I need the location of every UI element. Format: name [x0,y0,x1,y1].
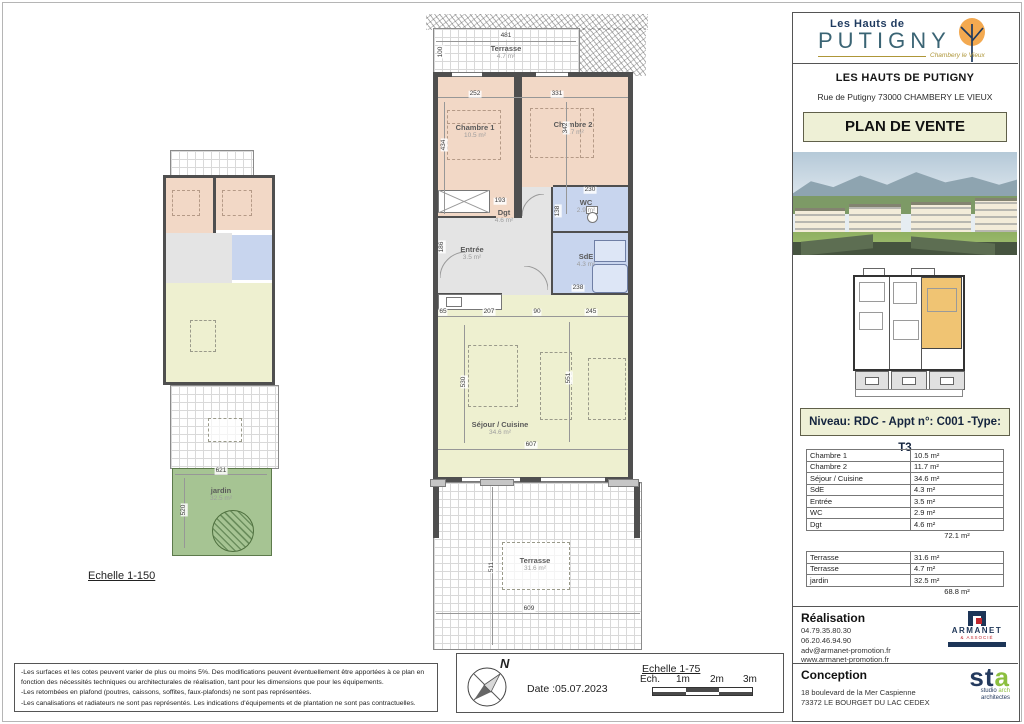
room-name: jardin [210,486,232,495]
room-label-cell: Entrée [807,496,911,508]
room-area: 4.6 m² [495,217,513,225]
dimension-label: 138 [555,205,562,218]
terrace-wall [433,482,439,538]
small-room-bath [232,235,272,280]
pier [430,479,446,487]
address-line: 18 boulevard de la Mer Caspienne [801,688,930,698]
room-label-sde: SdE 4.3 m² [577,252,595,270]
room-name: Chambre 1 [456,123,495,132]
room-label-cell: SdE [807,484,911,496]
door-arc [522,194,544,216]
room-label-cell: jardin [807,575,911,587]
door-arc [524,266,548,290]
sofa-outline [588,358,626,420]
sta-logo: sta studio arch architectes [940,666,1010,702]
room-name: Séjour / Cuisine [472,420,529,429]
brand-logo-place-text: Chambery le Vieux [930,52,985,59]
dimension-label: 511 [489,561,496,573]
key-room [927,288,957,312]
room-label-entree: Entrée 3.5 m² [460,245,483,263]
sta-arch-text: arch [998,688,1010,694]
plan-de-vente-sheet: 481 100 Terrasse 4.7 m² [0,0,1024,724]
address-line: 73372 LE BOURGET DU LAC CEDEX [801,698,930,708]
small-wall-partition [213,178,216,233]
dimension-label: 207 [483,309,496,316]
key-room [859,282,885,302]
room-label-cell: Chambre 1 [807,450,911,462]
disclaimer-box: -Les surfaces et les cotes peuvent varie… [14,663,438,712]
room-name: Terrasse [520,556,551,565]
disclaimer-line: -Les surfaces et les cotes peuvent varie… [21,668,431,688]
dimension-label: 186 [439,241,446,254]
inner-wall [553,231,628,233]
realisation-lines: 04.79.35.80.30 06.20.46.94.90 adv@armane… [801,626,891,665]
dimension-label: 331 [551,91,564,98]
table-row: Terrasse31.6 m² [807,552,1004,564]
room-area: 2.9 m² [577,207,595,215]
email-address: adv@armanet-promotion.fr [801,646,891,656]
small-bed-outline [172,190,200,216]
table-total-row: 72.1 m² [807,530,1004,541]
empty-cell [807,586,911,597]
dimension-line [436,41,576,42]
room-area: 4.7 m² [491,53,522,61]
inner-wall [553,293,628,295]
dimension-line [444,102,445,214]
room-value-cell: 32.5 m² [911,575,1004,587]
room-value-cell: 34.6 m² [911,473,1004,485]
shower [594,240,626,262]
room-value-cell: 3.5 m² [911,496,1004,508]
small-terrace-top [170,150,254,178]
pier [608,479,639,487]
rooms-total-cell: 72.1 m² [911,530,1004,541]
room-area: 3.5 m² [460,254,483,262]
room-label-terrasse-top: Terrasse 4.7 m² [491,44,522,62]
bathtub [592,264,628,293]
key-room [893,320,919,340]
armanet-logo-sub: & ASSOCIÉ [945,635,1009,640]
sta-logo-line2: architectes [940,695,1010,702]
room-value-cell: 11.7 m² [911,461,1004,473]
room-value-cell: 4.6 m² [911,519,1004,531]
key-wall [889,277,890,369]
outdoor-areas-table: Terrasse31.6 m² Terrasse4.7 m² jardin32.… [806,551,1004,597]
dimension-label: 342 [563,122,570,135]
compass-icon [466,666,508,708]
dimension-line [438,449,628,450]
room-name: Dgt [495,208,513,217]
dimension-label: 230 [584,187,597,194]
room-area: 31.6 m² [520,565,551,573]
project-address: Rue de Putigny 73000 CHAMBERY LE VIEUX [792,92,1018,102]
table-row: Chambre 110.5 m² [807,450,1004,462]
brand-logo-main-text: PUTIGNY [818,28,951,54]
room-value-cell: 4.3 m² [911,484,1004,496]
key-table [902,377,916,385]
table-total-row: 68.8 m² [807,586,1004,597]
room-area: 34.6 m² [472,429,529,437]
dimension-label: 520 [181,504,188,517]
dimension-label: 65 [438,309,447,316]
room-name: SdE [577,252,595,261]
dimension-label: 530 [461,376,468,389]
room-areas-table: Chambre 110.5 m² Chambre 211.7 m² Séjour… [806,449,1004,541]
dimension-label: 551 [566,372,573,385]
table-row: Séjour / Cuisine34.6 m² [807,473,1004,485]
tree-icon [212,510,254,552]
scalebar-ech-label: Ech. [640,674,660,685]
gold-rule [818,56,926,57]
dimension-label: 238 [572,285,585,292]
dimension-label: 434 [441,139,448,152]
sta-logo-letters: sta [940,666,1010,688]
table-row: jardin32.5 m² [807,575,1004,587]
phone-number: 06.20.46.94.90 [801,636,891,646]
armanet-dot-icon [976,618,982,624]
dimension-line [438,316,628,317]
dimension-line [566,102,567,214]
brand-logo: Les Hauts de PUTIGNY Chambery le Vieux [800,16,1010,62]
key-room [893,282,917,304]
small-room-sejour [166,283,272,382]
scale-bar-segment [719,692,752,696]
unit-header-banner: Niveau: RDC - Appt n°: C001 -Type: T3 [800,408,1010,436]
dimension-label: 481 [500,33,513,40]
room-area: 32.5 m² [210,495,232,503]
armanet-logo: ARMANET & ASSOCIÉ [945,611,1009,647]
dimension-label: 607 [525,442,538,449]
table-row: SdE4.3 m² [807,484,1004,496]
kitchen-sink [446,297,462,307]
armanet-banner [948,642,1006,647]
mountains [793,166,1017,200]
window [536,72,568,77]
dimension-label: 252 [469,91,482,98]
room-label-cell: Terrasse [807,563,911,575]
conception-heading: Conception [801,668,867,682]
sta-studio-text: studio [981,688,999,694]
window [452,72,482,77]
room-label-cell: Dgt [807,519,911,531]
small-terrace-table-outline [208,418,242,442]
scalebar-2m-label: 2m [710,674,724,685]
room-name: Chambre 2 [554,120,593,129]
inner-wall [551,187,553,295]
room-label-chambre2: Chambre 2 11.7 m² [554,120,593,138]
dimension-label: 621 [215,468,228,475]
dimension-line [436,613,640,614]
dimension-label: 245 [585,309,598,316]
room-name: Entrée [460,245,483,254]
key-room [859,312,883,330]
pier [480,479,514,486]
room-area: 11.7 m² [554,129,593,137]
project-title: LES HAUTS DE PUTIGNY [792,72,1018,84]
dimension-label: 609 [523,606,536,613]
room-label-dgt: Dgt 4.6 m² [495,208,513,226]
key-table [940,377,954,385]
room-label-sejour: Séjour / Cuisine 34.6 m² [472,420,529,438]
scale-bar-segment [653,692,686,696]
wardrobe-icon [438,190,490,213]
room-area: 4.3 m² [577,261,595,269]
key-ground-band [855,389,963,397]
separator [792,606,1018,607]
room-value-cell: 31.6 m² [911,552,1004,564]
key-plan [853,268,965,398]
room-area: 10.5 m² [456,132,495,140]
doc-type-banner: PLAN DE VENTE [803,112,1007,142]
disclaimer-line: -Les retombées en plafond (poutres, cais… [21,688,431,698]
scale-label-small: Echelle 1-150 [88,570,155,582]
table-row: Terrasse4.7 m² [807,563,1004,575]
key-wall [921,277,922,369]
separator [792,63,1018,64]
outdoor-total-cell: 68.8 m² [911,586,1004,597]
key-table [865,377,879,385]
room-name: Terrasse [491,44,522,53]
armanet-gate-icon [968,611,986,626]
realisation-heading: Réalisation [801,611,865,625]
scale-bar [652,687,753,696]
room-label-terrasse-bottom: Terrasse 31.6 m² [520,556,551,574]
room-label-cell: Séjour / Cuisine [807,473,911,485]
room-name: WC [577,198,595,207]
room-label-cell: Chambre 2 [807,461,911,473]
room-label-chambre1: Chambre 1 10.5 m² [456,123,495,141]
hedge-right [580,28,646,76]
room-label-jardin: jardin 32.5 m² [210,486,232,504]
building-render-image [793,152,1017,255]
room-label-wc: WC 2.9 m² [577,198,595,216]
conception-lines: 18 boulevard de la Mer Caspienne 73372 L… [801,688,930,708]
armanet-logo-name: ARMANET [945,626,1009,635]
pillow-outline [447,110,501,124]
room-value-cell: 4.7 m² [911,563,1004,575]
terrace-wall [634,482,640,538]
room-label-cell: Terrasse [807,552,911,564]
room-value-cell: 10.5 m² [911,450,1004,462]
disclaimer-line: -Les canalisations et radiateurs ne sont… [21,699,431,709]
date-label: Date :05.07.2023 [527,683,608,695]
wall-partition [514,77,522,218]
dimension-label: 193 [494,198,507,205]
small-bed-outline [222,190,252,216]
dimension-label: 90 [532,309,541,316]
island-outline [540,352,572,420]
scalebar-3m-label: 3m [743,674,757,685]
phone-number: 04.79.35.80.30 [801,626,891,636]
scale-bar-segment [686,692,719,696]
inner-wall [438,216,496,218]
table-row: Chambre 211.7 m² [807,461,1004,473]
table-row: WC2.9 m² [807,507,1004,519]
small-table-outline [190,320,216,352]
dimension-line [438,97,628,98]
small-room-hall [166,233,232,283]
scalebar-1m-label: 1m [676,674,690,685]
dimension-label: 100 [438,46,445,59]
room-value-cell: 2.9 m² [911,507,1004,519]
table-row: Dgt4.6 m² [807,519,1004,531]
table-row: Entrée3.5 m² [807,496,1004,508]
dining-table-outline [468,345,518,407]
north-label: N [500,656,509,671]
room-label-cell: WC [807,507,911,519]
empty-cell [807,530,911,541]
